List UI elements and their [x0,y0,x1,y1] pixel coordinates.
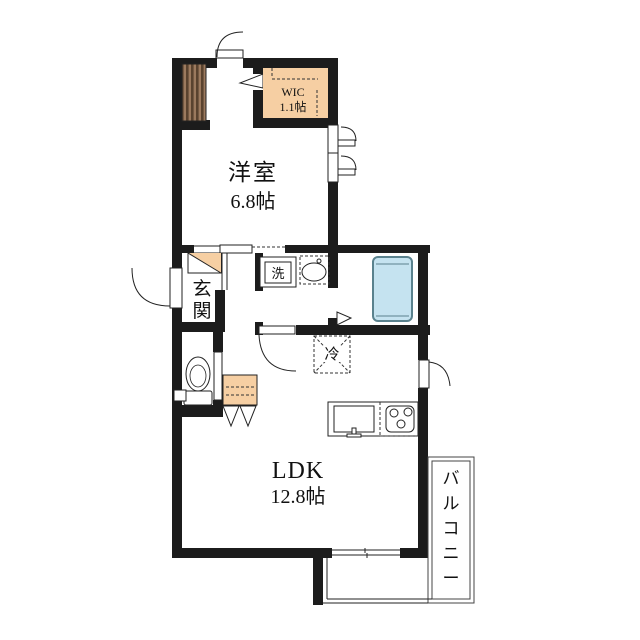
balcony-label-char: ー [443,569,460,588]
wall-segment [328,182,338,255]
wall-segment [253,118,338,128]
bathroom [373,257,412,321]
wic-label: WIC [281,85,304,99]
ldk-side-door-swing-arc [429,362,450,386]
stove-burner [390,409,398,417]
wic-door-leaf [240,74,263,88]
wall-segment [172,58,182,248]
toilet-door-leaf [214,352,222,400]
closet-folding-door [223,406,239,426]
bedroom-area: 洋室 6.8帖 [228,160,278,213]
ldk-door-swing-arc [259,335,296,371]
bedroom-size-label: 6.8帖 [231,190,276,213]
stove-burner [404,408,412,416]
balcony-area: バ ル コ ニ ー [323,457,474,603]
bedroom-window-swing-arc [341,156,356,170]
wall-segment [313,553,323,605]
entrance-door-swing-arc [132,268,170,306]
washing-machine-label: 洗 [271,266,284,281]
bathtub [373,257,412,321]
bathroom-door-leaf [337,312,351,325]
wall-segment [296,325,430,335]
floorplan-svg: WIC 1.1帖 玄 関 洗 [0,0,640,640]
wall-segment [172,308,182,558]
bedroom-window-swing-arc [341,127,356,141]
wall-segment [418,388,428,558]
wall-segment [172,405,223,417]
wall-segment [172,548,332,558]
bedroom-label: 洋室 [228,160,278,185]
balcony-label-char: ニ [443,544,460,563]
entrance-door-leaf [170,268,182,308]
bedroom-window-frame [328,153,338,182]
ldk-area: 冷 LDK 12.8帖 [271,336,419,508]
wall-segment [213,332,223,352]
toilet-bowl [186,357,210,391]
wall-segment [215,290,225,322]
wic-closet: WIC 1.1帖 [263,68,328,118]
balcony-label-char: コ [443,519,460,538]
wall-segment [285,245,430,253]
stairs-area [182,64,206,121]
hall-closet [223,375,257,426]
entrance-label-char1: 玄 [192,278,211,300]
floorplan-canvas: WIC 1.1帖 玄 関 洗 [0,0,640,640]
stove-burner [397,420,405,428]
ldk-size-label: 12.8帖 [271,485,326,508]
bedroom-window-leaf [338,169,355,175]
refrigerator-label: 冷 [324,346,339,363]
ldk-side-door-leaf [419,360,429,388]
balcony-label-char: バ [443,469,460,488]
vanity-faucet [317,259,321,263]
bedroom-window-frame [328,125,338,153]
wall-segment [172,248,182,268]
entrance-label-char2: 関 [192,301,211,322]
wall-segment [418,245,428,360]
closet-folding-door [240,406,256,426]
toilet-tank [184,391,212,405]
wall-segment [328,58,338,125]
top-exterior-door-leaf [216,50,243,58]
wic-size-label: 1.1帖 [279,99,306,114]
bedroom-sliding-door-panel [220,245,252,253]
ldk-door-leaf [259,326,295,334]
kitchen-faucet-base [347,434,361,437]
ldk-label: LDK [272,458,324,484]
closet-floor [223,375,257,405]
walls [172,58,430,605]
bedroom-window-leaf [338,140,355,146]
wall-segment [400,548,428,558]
wall-segment [253,58,263,74]
vanity-sink-basin [302,263,326,281]
toilet-control-panel [174,390,186,401]
wall-segment [172,322,225,332]
washroom: 洗 [260,256,329,287]
balcony-label-char: ル [443,494,460,513]
